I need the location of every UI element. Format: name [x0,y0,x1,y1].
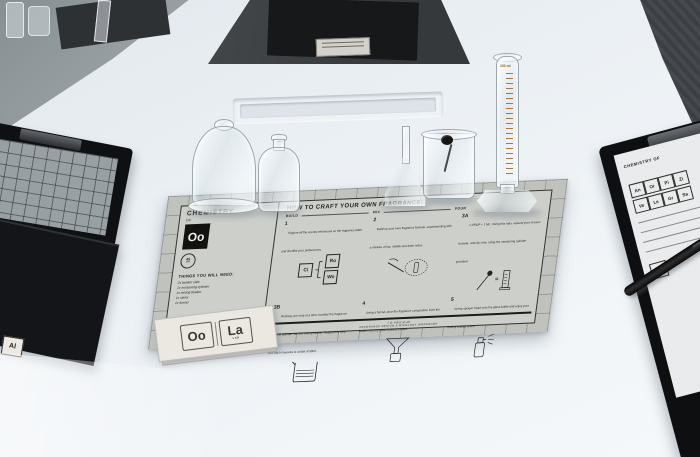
mini-cylinder-icon [499,268,514,291]
step-3a: 3A 1 DROP = 1 ML. Using this ratio, expa… [452,210,543,294]
step-number: 3A [462,213,469,219]
element-card-al: Al [1,335,25,357]
far-label-card [316,37,371,57]
dark-mat-top-right [632,0,700,140]
measuring-cylinder: 100 ml [496,56,519,188]
glass-cloche [192,126,256,206]
phase-divider [302,212,369,216]
steps-grid: 1 Explore all the scents referenced on t… [264,210,543,385]
step-1: 1 Explore all the scents referenced on t… [275,218,366,302]
step-number: 3B [273,304,280,310]
duration-badge: 45 MIN [180,253,197,269]
phase-mix: MIX [373,210,381,214]
element-tile-wo: Wo [323,270,339,285]
step-5: 5 Crimp sprayer head onto the glass bott… [441,293,532,377]
funnel-pour-illustration [355,336,439,364]
duration-unit: MIN [186,261,190,263]
step-number: 4 [362,301,366,307]
step-text: Working one note at a time, transfer the… [268,312,348,356]
element-tile-oo: Oo [182,223,210,249]
card-divider [214,322,218,346]
beaker-icon [288,359,323,385]
card-tile-la-subtext: LAB [233,336,240,340]
step-2: 2 Build up your own fragrance formula, e… [363,214,454,298]
equals-sign: = [494,277,498,283]
dropper-icon [473,269,494,292]
far-glass-bottle-icon [6,2,24,38]
table-slot-groove [240,98,436,119]
scent-tiles-illustration: Ci Ro Wo [277,256,361,284]
glass-bottle [258,147,300,212]
glass-funnel [383,158,427,206]
element-tile-ro: Ro [325,254,341,269]
fragrance-workshop-table-photo: CHEMISTRY OF Oo 45 MIN THINGS YOU WILL N… [0,0,700,457]
writing-formula-illustration [366,252,450,280]
label-line [322,41,364,43]
glass-cloche-base [188,198,260,214]
step-number: 1 [284,221,288,227]
step-number: 2 [373,217,377,223]
periodic-table-sheet [0,136,118,235]
worksheet-tile: Zi [672,170,690,187]
hand-writing-icon [384,253,431,279]
funnel-bottle-icon [380,336,413,363]
spray-illustration [443,332,527,360]
label-line [322,45,364,47]
table-runner [208,0,470,64]
far-glass-jar-icon [28,6,50,36]
tile-stack: Ro Wo [323,254,341,285]
step-4: 4 Using a funnel, pour the fragrance com… [352,297,443,381]
worksheet-heading: CHEMISTRY OF [623,155,660,169]
element-tile-ci: Ci [298,263,314,278]
far-clipboard-left [56,0,171,49]
step-text: 1 DROP = 1 ML. Using this ratio, expand … [456,220,541,264]
phase-pour: POUR [455,206,467,211]
worksheet-tile: Sa [676,185,694,202]
measuring-cylinder-base [477,190,537,212]
drop-ratio-illustration: = [452,266,536,294]
step-text: Explore all the scents referenced on the… [281,228,362,254]
step-number: 5 [451,297,455,303]
table-slot [233,91,444,124]
formula-worksheet: CHEMISTRY OF Oo An Or Pi Zi Ve Le Gr Sa … [614,123,700,398]
card-tile-oo: Oo [179,321,214,351]
mixing-beaker-illustration [264,358,348,386]
worksheet-writing-line [643,213,700,243]
cylinder-volume-label: 100 ml [500,64,511,68]
step-text: Build up your own fragrance formula, exp… [370,224,452,250]
card-tile-la: La LAB [218,316,253,346]
spray-bottle-icon [467,332,502,360]
cylinder-graduations [506,73,513,177]
